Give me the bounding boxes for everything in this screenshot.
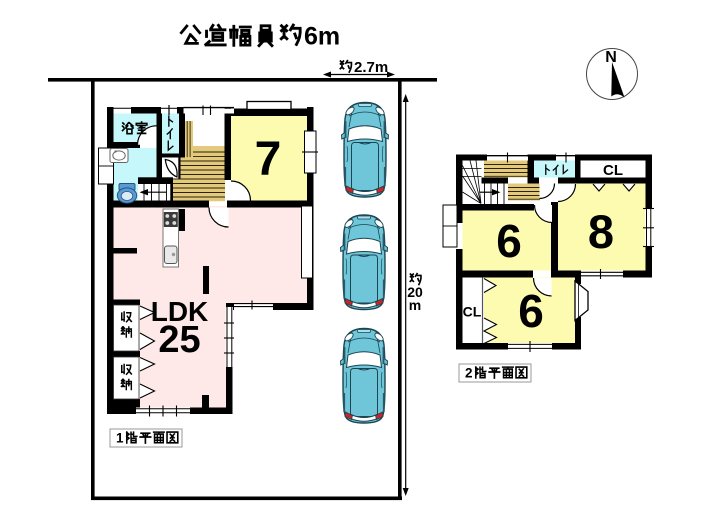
svg-text:2: 2 — [465, 366, 473, 381]
svg-text:25: 25 — [158, 319, 200, 361]
svg-text:1: 1 — [116, 431, 124, 446]
svg-text:N: N — [605, 49, 617, 66]
svg-text:6m: 6m — [304, 23, 340, 51]
svg-text:2.7m: 2.7m — [354, 59, 388, 76]
svg-text:CL: CL — [463, 304, 482, 320]
svg-text:6: 6 — [518, 285, 544, 337]
svg-text:CL: CL — [603, 162, 623, 179]
svg-text:7: 7 — [255, 133, 282, 186]
svg-text:m: m — [409, 297, 421, 313]
svg-text:8: 8 — [588, 205, 614, 258]
svg-text:6: 6 — [496, 215, 522, 267]
